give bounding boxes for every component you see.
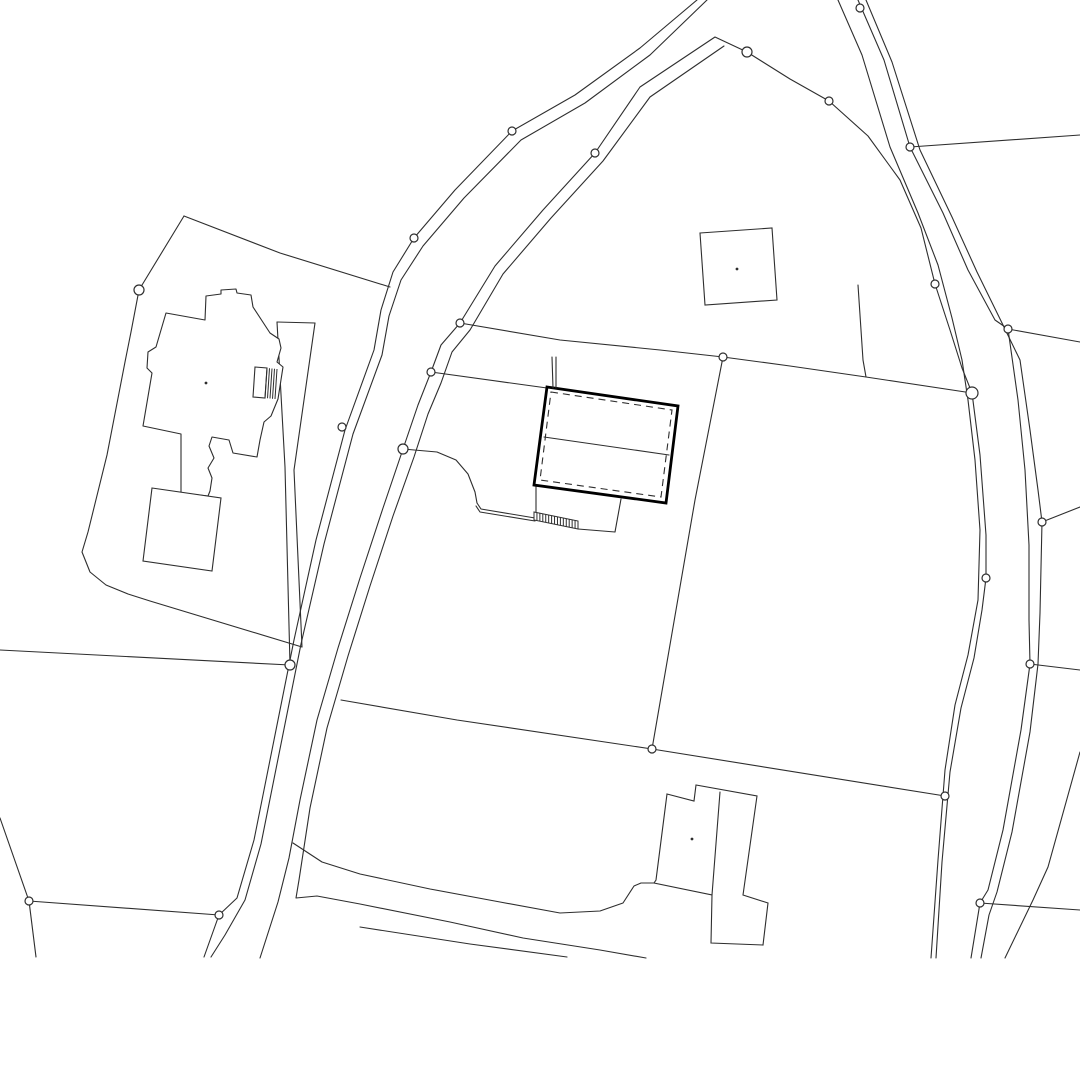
survey-node — [742, 47, 752, 57]
survey-node — [25, 897, 33, 905]
survey-node — [508, 127, 516, 135]
survey-node — [338, 423, 346, 431]
small-square-dot — [736, 268, 739, 271]
survey-node — [1026, 660, 1034, 668]
boundary-to-building-corner — [431, 372, 547, 388]
boundary-right-outer-diagonal — [1005, 752, 1080, 958]
survey-node — [856, 4, 864, 12]
church-center-dot — [205, 382, 208, 385]
stairs-hatch-band-outline — [534, 512, 578, 529]
survey-node — [982, 574, 990, 582]
boundary-topleft-parcel-north — [184, 216, 390, 287]
terrace-right-edge — [615, 499, 621, 532]
boundary-right-3 — [1042, 507, 1080, 522]
survey-node — [825, 97, 833, 105]
survey-node — [966, 387, 978, 399]
survey-node — [215, 911, 223, 919]
boundary-right-2 — [1008, 329, 1080, 342]
site-plan-drawing — [0, 0, 1080, 1080]
site-plan-page — [0, 0, 1080, 1080]
path-south-edge — [360, 927, 567, 957]
terrace-bottom-edge — [578, 529, 615, 532]
bottom-house-outline — [654, 785, 768, 945]
boundary-long-middle — [341, 700, 945, 796]
survey-node — [591, 149, 599, 157]
boundary-mid-horizontal — [0, 650, 290, 665]
proposed-building-outline — [534, 387, 678, 503]
church-annex-square — [143, 488, 221, 571]
right-road-west-edge-2 — [747, 52, 986, 958]
survey-node — [906, 143, 914, 151]
driveway-curve-to-house — [293, 843, 654, 913]
survey-node — [398, 444, 408, 454]
boundary-stub-vertical — [858, 285, 866, 377]
small-square-parcel — [700, 228, 777, 305]
boundary-central-parcel-north — [460, 323, 972, 393]
survey-node — [410, 234, 418, 242]
survey-node — [456, 319, 464, 327]
flagpole-wall-line-1 — [552, 357, 553, 388]
boundary-bottomleft-3 — [29, 901, 36, 957]
survey-node — [285, 660, 295, 670]
bottom-house-dot — [691, 838, 694, 841]
survey-node — [427, 368, 435, 376]
boundary-bottomleft-2 — [29, 901, 219, 915]
survey-node — [648, 745, 656, 753]
survey-node — [719, 353, 727, 361]
boundary-right-1 — [910, 135, 1080, 147]
survey-node — [941, 792, 949, 800]
right-road-east-edge-1 — [858, 0, 1030, 958]
boundary-bottomleft-1 — [0, 818, 29, 901]
strip-top-edge — [277, 322, 315, 323]
survey-node — [931, 280, 939, 288]
survey-node — [976, 899, 984, 907]
survey-node — [1038, 518, 1046, 526]
survey-node — [134, 285, 144, 295]
survey-node — [1004, 325, 1012, 333]
